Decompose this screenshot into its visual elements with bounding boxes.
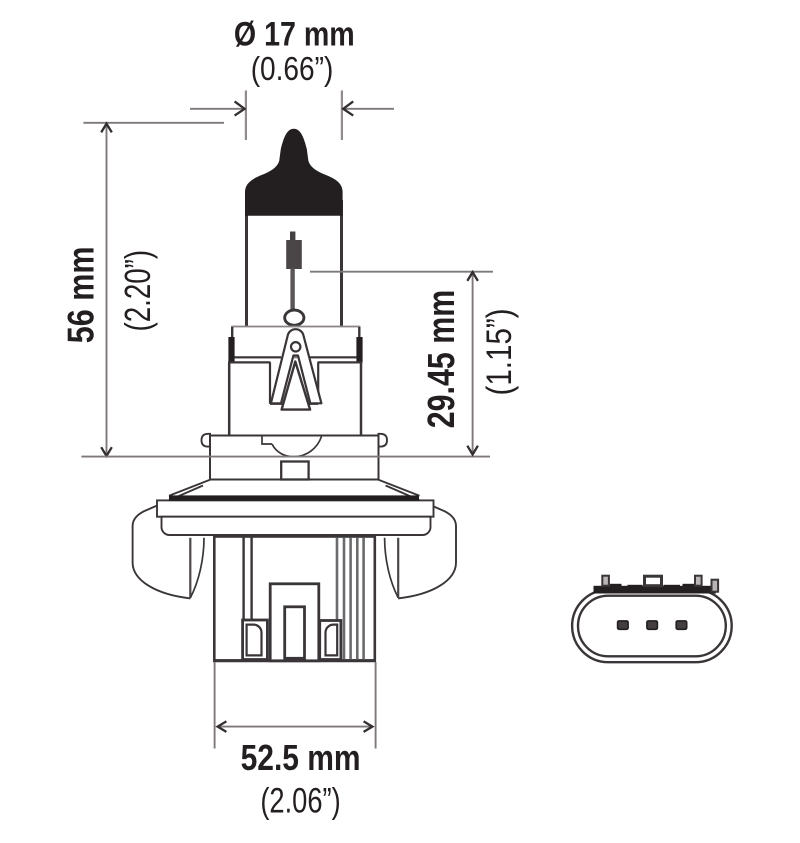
svg-text:52.5 mm: 52.5 mm bbox=[241, 738, 361, 778]
svg-text:(2.20”): (2.20”) bbox=[118, 250, 158, 332]
svg-text:(1.15”): (1.15”) bbox=[480, 308, 519, 395]
svg-text:Ø 17 mm: Ø 17 mm bbox=[234, 15, 355, 53]
svg-text:29.45 mm: 29.45 mm bbox=[421, 290, 463, 429]
svg-text:(2.06”): (2.06”) bbox=[260, 781, 340, 820]
svg-text:(0.66”): (0.66”) bbox=[251, 51, 334, 88]
svg-text:56 mm: 56 mm bbox=[61, 247, 102, 344]
